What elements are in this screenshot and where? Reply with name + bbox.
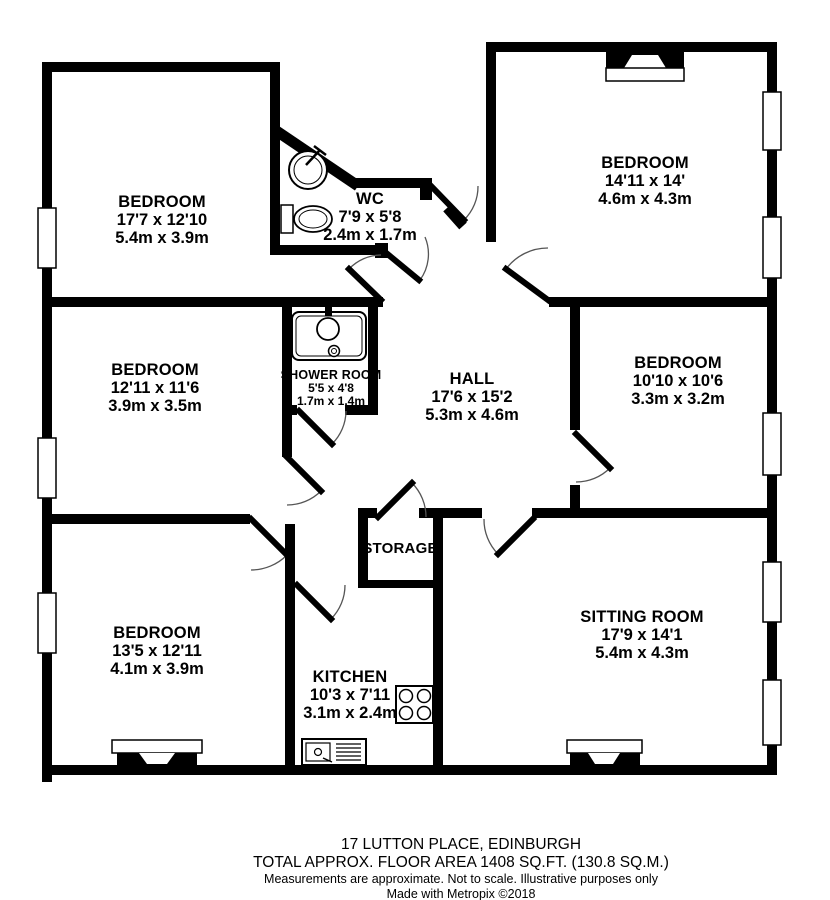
door-arc-bedroomtr bbox=[506, 248, 548, 269]
wall-bedroomtl-right bbox=[270, 62, 280, 135]
room-dim-metric: 3.3m x 3.2m bbox=[631, 390, 725, 408]
room-label-bedroom-tl: BEDROOM 17'7 x 12'10 5.4m x 3.9m bbox=[115, 193, 209, 247]
door-leaf-sitting bbox=[498, 519, 533, 554]
hob-icon bbox=[396, 686, 433, 723]
wall-wc-left bbox=[270, 128, 280, 255]
door-leaf-shower bbox=[299, 411, 332, 444]
room-name: HALL bbox=[425, 370, 519, 388]
room-name: STORAGE bbox=[362, 540, 437, 558]
door-leaf-bedroombl bbox=[251, 519, 287, 555]
wall-bedroommr-jamb bbox=[570, 485, 580, 518]
door-arc-wc bbox=[420, 237, 428, 280]
footer-disclaimer: Measurements are approximate. Not to sca… bbox=[253, 872, 669, 887]
door-arc-bedroombl bbox=[251, 555, 287, 570]
wall-sitting-top-left bbox=[433, 508, 482, 518]
wall-bedroombl-top bbox=[42, 514, 250, 524]
door-arc-sitting bbox=[484, 519, 498, 554]
wall-wc-top bbox=[352, 178, 428, 188]
room-dim-imperial: 10'3 x 7'11 bbox=[303, 686, 397, 704]
room-label-hall: HALL 17'6 x 15'2 5.3m x 4.6m bbox=[425, 370, 519, 424]
room-label-bedroom-tr: BEDROOM 14'11 x 14' 4.6m x 4.3m bbox=[598, 154, 692, 208]
fireplace-icon bbox=[567, 740, 642, 767]
shower-icon bbox=[292, 307, 366, 360]
door-arc-kitchen bbox=[331, 585, 345, 619]
fireplace-icon bbox=[112, 740, 202, 767]
floorplan-canvas: BEDROOM 17'7 x 12'10 5.4m x 3.9m WC 7'9 … bbox=[0, 0, 830, 900]
room-dim-metric: 4.6m x 4.3m bbox=[598, 190, 692, 208]
room-name: BEDROOM bbox=[631, 354, 725, 372]
door-arc-entrance bbox=[464, 186, 478, 220]
window-sitting-2 bbox=[763, 680, 781, 745]
wall-storage-top-left bbox=[358, 508, 377, 518]
room-name: BEDROOM bbox=[115, 193, 209, 211]
sink-icon bbox=[289, 146, 327, 189]
room-name: SITTING ROOM bbox=[580, 608, 703, 626]
room-dim-metric: 3.9m x 3.5m bbox=[108, 397, 202, 415]
room-name: KITCHEN bbox=[303, 668, 397, 686]
room-label-bedroom-mr: BEDROOM 10'10 x 10'6 3.3m x 3.2m bbox=[631, 354, 725, 408]
room-dim-imperial: 17'6 x 15'2 bbox=[425, 388, 519, 406]
room-name: BEDROOM bbox=[110, 624, 204, 642]
window-bedroomtr-2 bbox=[763, 217, 781, 278]
fireplace-icon bbox=[606, 52, 684, 81]
room-dim-metric: 4.1m x 3.9m bbox=[110, 660, 204, 678]
door-leaf-bedroomtl bbox=[349, 269, 381, 300]
footer: 17 LUTTON PLACE, EDINBURGH TOTAL APPROX.… bbox=[253, 836, 669, 900]
door-leaf-kitchen bbox=[297, 585, 331, 619]
window-bedroommr bbox=[763, 413, 781, 475]
wall-sitting-top-right bbox=[532, 508, 777, 518]
room-dim-imperial: 12'11 x 11'6 bbox=[108, 379, 202, 397]
wall-bedroomtr-bottom bbox=[549, 297, 777, 307]
wall-top-left bbox=[42, 62, 280, 72]
door-leaf-bedroomtr bbox=[506, 269, 548, 300]
room-dim-imperial: 13'5 x 12'11 bbox=[110, 642, 204, 660]
room-name: WC bbox=[323, 190, 417, 208]
room-label-bedroom-ml: BEDROOM 12'11 x 11'6 3.9m x 3.5m bbox=[108, 361, 202, 415]
wall-top-right bbox=[486, 42, 777, 52]
window-bedroomml bbox=[38, 438, 56, 498]
window-bedroombl bbox=[38, 593, 56, 653]
window-bedroomtl bbox=[38, 208, 56, 268]
room-label-shower-room: SHOWER ROOM 5'5 x 4'8 1.7m x 1.4m bbox=[281, 369, 382, 408]
door-leaf-bedroommr bbox=[576, 434, 610, 468]
wall-storage-bottom bbox=[358, 580, 443, 588]
room-dim-metric: 5.3m x 4.6m bbox=[425, 406, 519, 424]
room-dim-imperial: 14'11 x 14' bbox=[598, 172, 692, 190]
room-dim-imperial: 17'7 x 12'10 bbox=[115, 211, 209, 229]
door-leaf-wc bbox=[385, 252, 419, 280]
kitchen-sink-icon bbox=[302, 739, 366, 765]
wall-outer-left bbox=[42, 62, 52, 782]
door-arc-shower bbox=[332, 411, 346, 444]
door-leaf-storage bbox=[378, 483, 412, 517]
wall-bedroommr-left bbox=[570, 307, 580, 430]
room-label-kitchen: KITCHEN 10'3 x 7'11 3.1m x 2.4m bbox=[303, 668, 397, 722]
room-label-bedroom-bl: BEDROOM 13'5 x 12'11 4.1m x 3.9m bbox=[110, 624, 204, 678]
room-dim-imperial: 17'9 x 14'1 bbox=[580, 626, 703, 644]
room-dim-metric: 1.7m x 1.4m bbox=[281, 395, 382, 408]
room-dim-metric: 5.4m x 3.9m bbox=[115, 229, 209, 247]
wall-wc-bottom bbox=[270, 245, 383, 255]
door-arc-bedroomml bbox=[287, 491, 321, 505]
room-label-wc: WC 7'9 x 5'8 2.4m x 1.7m bbox=[323, 190, 417, 244]
door-leaf-bedroomml bbox=[287, 457, 321, 491]
room-dim-metric: 5.4m x 4.3m bbox=[580, 644, 703, 662]
room-label-sitting-room: SITTING ROOM 17'9 x 14'1 5.4m x 4.3m bbox=[580, 608, 703, 662]
wall-outer-right bbox=[767, 42, 777, 775]
door-arc-bedroommr bbox=[576, 468, 610, 482]
room-name: BEDROOM bbox=[598, 154, 692, 172]
wall-bedroombl-right bbox=[285, 524, 295, 775]
window-sitting-1 bbox=[763, 562, 781, 622]
room-dim-metric: 3.1m x 2.4m bbox=[303, 704, 397, 722]
room-dim-imperial: 7'9 x 5'8 bbox=[323, 208, 417, 226]
wall-divider-tl-ml bbox=[42, 297, 383, 307]
wall-bedroomtr-left bbox=[486, 42, 496, 242]
footer-credit: Made with Metropix ©2018 bbox=[253, 887, 669, 900]
footer-total-area: TOTAL APPROX. FLOOR AREA 1408 SQ.FT. (13… bbox=[253, 854, 669, 872]
room-label-storage: STORAGE bbox=[362, 540, 437, 558]
wall-bedroomml-right bbox=[282, 415, 292, 457]
footer-address: 17 LUTTON PLACE, EDINBURGH bbox=[253, 836, 669, 854]
room-dim-metric: 2.4m x 1.7m bbox=[323, 226, 417, 244]
floorplan-geometry bbox=[0, 0, 830, 830]
window-bedroomtr-1 bbox=[763, 92, 781, 150]
room-dim-imperial: 10'10 x 10'6 bbox=[631, 372, 725, 390]
room-name: BEDROOM bbox=[108, 361, 202, 379]
